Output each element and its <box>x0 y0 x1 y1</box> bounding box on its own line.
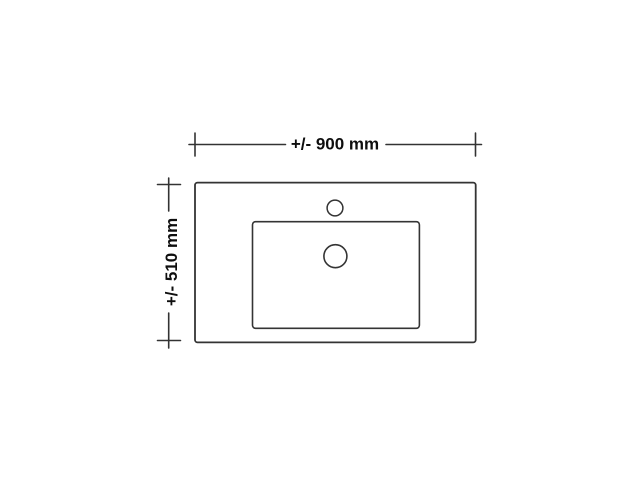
svg-text:+/- 510 mm: +/- 510 mm <box>162 218 181 306</box>
svg-text:+/- 900 mm: +/- 900 mm <box>291 134 379 153</box>
